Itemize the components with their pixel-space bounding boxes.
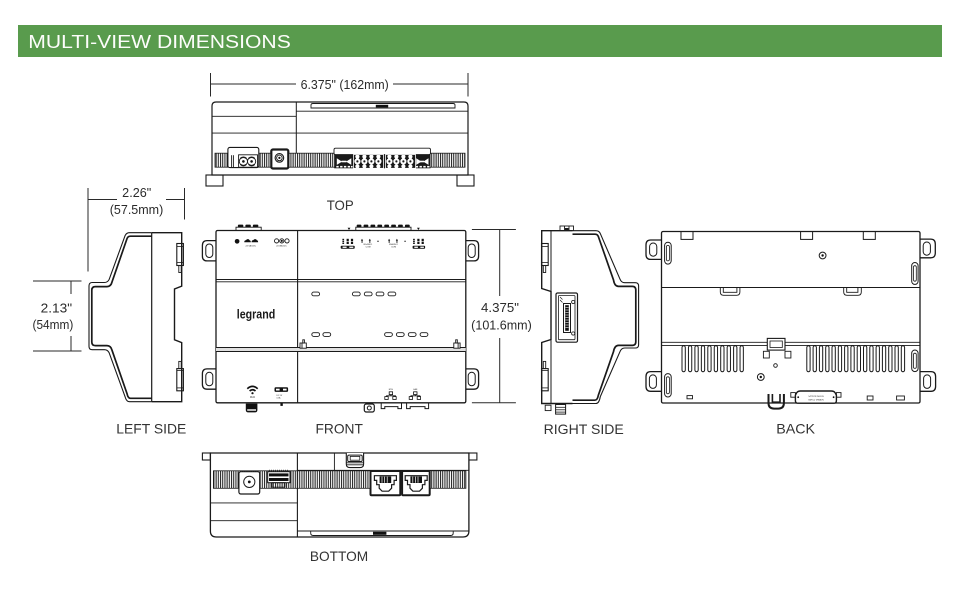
svg-text:FRONT: FRONT [316,421,364,437]
svg-text:MULTI-VIEW DIMENSIONS: MULTI-VIEW DIMENSIONS [28,32,291,52]
svg-text:DC 5V: DC 5V [277,395,283,397]
svg-text:RS485#2: RS485#2 [389,244,399,246]
svg-text:ETH: ETH [389,389,394,391]
svg-text:TOP: TOP [327,197,354,213]
svg-text:COM: COM [366,246,371,248]
svg-text:RIGHT SIDE: RIGHT SIDE [544,421,624,437]
svg-text:RS485#1: RS485#1 [364,244,374,246]
svg-text:(54mm): (54mm) [33,318,74,332]
svg-text:54*2973 2901#N: 54*2973 2901#N [808,396,824,398]
svg-text:Wi-Fi: Wi-Fi [250,397,256,399]
svg-text:(101.6mm): (101.6mm) [471,318,532,332]
svg-text:4.375": 4.375" [481,301,519,315]
svg-text:6.375" (162mm): 6.375" (162mm) [301,77,389,92]
svg-text:2.26": 2.26" [122,186,151,200]
svg-text:BACK: BACK [776,420,815,436]
svg-text:legrand: legrand [237,307,276,321]
svg-text:COM: COM [391,246,396,248]
svg-text:BOTTOM: BOTTOM [310,548,368,564]
svg-text:2.13": 2.13" [41,301,73,315]
svg-text:LEFT SIDE: LEFT SIDE [116,421,186,437]
svg-text:65HCxr 5H34DN: 65HCxr 5H34DN [808,399,824,401]
svg-text:(57.5mm): (57.5mm) [110,203,164,217]
